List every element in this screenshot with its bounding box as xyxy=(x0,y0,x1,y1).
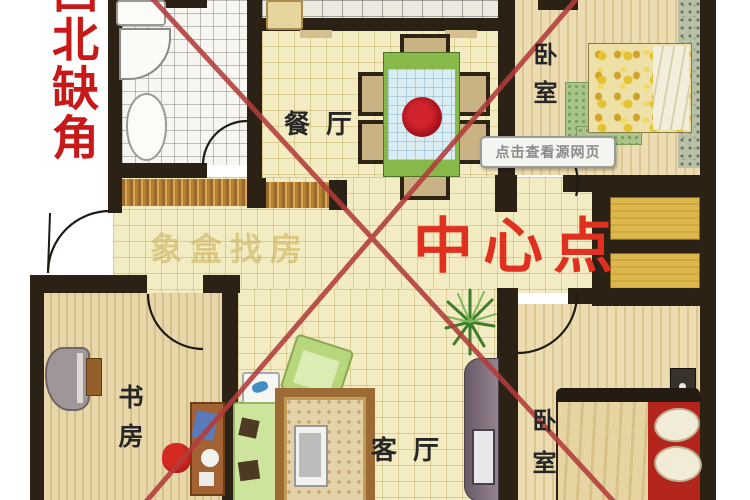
bedroom-bottom-label: 卧室 xyxy=(525,408,560,492)
view-source-tooltip-button[interactable]: 点击查看源网页 xyxy=(480,136,616,168)
corner-warning-text: 西北缺角 xyxy=(46,0,94,162)
study-label: 书房 xyxy=(111,384,147,462)
floorplan-canvas: 象盒找房 餐厅 卧室 卧室 书房 客厅 西北缺角 中心点 点击查看源网页 xyxy=(0,0,750,500)
bedroom-top-label: 卧室 xyxy=(526,42,561,118)
dining-label: 餐厅 xyxy=(284,104,368,141)
center-point-text: 中心点 xyxy=(413,198,623,285)
living-label: 客厅 xyxy=(371,430,455,467)
